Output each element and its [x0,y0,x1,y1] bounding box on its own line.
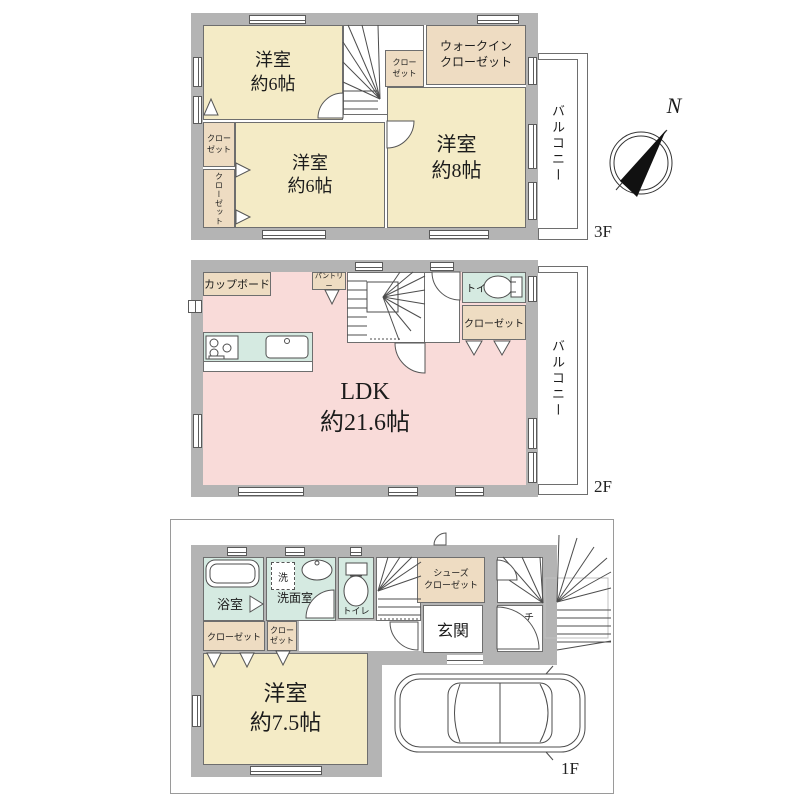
f1-entrance: 玄関 [423,605,483,653]
f2-window-left-2 [193,414,202,448]
f2-window-bottom-1 [238,487,304,496]
f1-laundry-label: 洗 [271,562,295,590]
f2-pantry: パントリー [312,272,346,290]
f1-toilet-label: トイレ [340,603,372,617]
f2-window-right-1 [528,276,537,302]
f3-balcony-label: バルコニー [548,104,567,184]
f1-hallway [299,621,421,651]
f3-closet-west-2-label: クローゼット [214,172,225,226]
f2-balcony-label: バルコニー [548,339,567,419]
f1-closet-wide-label: クローゼット [207,630,261,643]
compass-north-label: N [656,92,692,120]
f1-room-label: 洋室 約7.5帖 [250,680,322,737]
f1-entrance-door-gap [447,655,483,664]
f3-room-east-label: 洋室 約8帖 [432,132,482,184]
f2-window-right-3 [528,452,537,483]
f3-closet-west-2: クローゼット [203,169,235,228]
f3-closet-by-stairs-label: クロー ゼット [393,58,417,79]
f1-window-top-3 [350,547,362,556]
compass-icon [610,130,672,197]
f2-closet: クローゼット [462,305,526,340]
f1-closet-wide: クローゼット [203,621,265,651]
f3-closet-west-1-label: クロー ゼット [207,134,231,155]
f2-cupboard: カップボード [203,272,271,296]
f2-window-top-1 [355,262,383,271]
f2-pantry-label: パントリー [313,271,345,291]
f3-room-east: 洋室 約8帖 [387,87,526,228]
f3-window-top-1 [249,15,306,24]
f2-window-left-1 [188,300,202,313]
f3-closet-by-stairs: クロー ゼット [385,50,424,87]
f3-walkin-closet-label: ウォークイン クローゼット [440,39,512,70]
f1-porch-label: ポーチ [498,606,534,624]
f3-window-bottom-2 [429,230,489,239]
f1-bathroom: 浴室 [203,557,264,621]
f1-closet-small: クロー ゼット [267,621,297,651]
f1-window-bottom-1 [250,766,322,775]
f1-toilet: トイレ [338,557,374,619]
f3-room-northwest-label: 洋室 約6帖 [251,49,296,96]
f3-window-left-2 [193,96,202,124]
f1-entrance-label: 玄関 [437,617,469,641]
f2-window-top-2 [430,262,454,271]
f1-porch: ポーチ [497,605,543,652]
f1-shoe-closet-label: シューズ クローゼット [424,568,478,591]
f3-window-top-2 [477,15,519,24]
f1-closet-small-label: クロー ゼット [270,626,294,647]
f1-washroom: 洗 洗面室 [266,557,336,621]
f1-window-top-2 [285,547,305,556]
f3-room-northwest: 洋室 約6帖 [203,25,343,120]
f2-staircase [347,272,425,343]
f3-room-southwest-label: 洋室 約6帖 [288,152,333,199]
f1-bathroom-label: 浴室 [208,592,252,614]
f1-window-top-1 [227,547,247,556]
f2-floor-label: 2F [594,477,612,497]
f3-balcony: バルコニー [538,59,578,229]
f2-kitchen-counter [203,332,313,362]
f1-window-left-1 [192,695,201,727]
f1-room: 洋室 約7.5帖 [203,653,368,765]
f3-window-bottom-1 [262,230,326,239]
f2-toilet: トイレ [462,272,526,303]
f2-closet-label: クローゼット [464,315,524,330]
f1-floor-label: 1F [561,759,579,779]
f2-window-right-2 [528,418,537,449]
f3-window-right-2 [528,124,537,169]
f2-hallway [425,272,460,343]
f2-balcony: バルコニー [538,272,578,485]
f1-stair-landing [497,557,543,603]
f3-floor-label: 3F [594,222,612,242]
f2-ldk-label-wrap: LDK 約21.6帖 [290,378,440,438]
f2-cupboard-label: カップボード [204,276,270,292]
f3-window-right-3 [528,182,537,220]
compass-north-text: N [667,93,682,119]
f1-washroom-label: 洗面室 [269,588,321,606]
floorplan-page: 洋室 約6帖 クロー ゼット ウォークイン クローゼット 洋室 約8帖 洋室 約… [0,0,800,800]
f2-toilet-label: トイレ [463,280,496,295]
f3-room-southwest: 洋室 約6帖 [235,122,385,228]
f3-window-left-1 [193,57,202,87]
f3-walkin-closet: ウォークイン クローゼット [426,25,526,85]
f2-window-bottom-3 [455,487,484,496]
f2-ldk-label: LDK 約21.6帖 [320,377,410,439]
f3-window-right-1 [528,57,537,85]
f3-closet-west-1: クロー ゼット [203,122,235,167]
f1-shoe-closet: シューズ クローゼット [417,557,485,603]
f1-staircase [376,557,421,621]
f2-window-bottom-2 [388,487,418,496]
f2-kitchen-ledge [203,362,313,372]
